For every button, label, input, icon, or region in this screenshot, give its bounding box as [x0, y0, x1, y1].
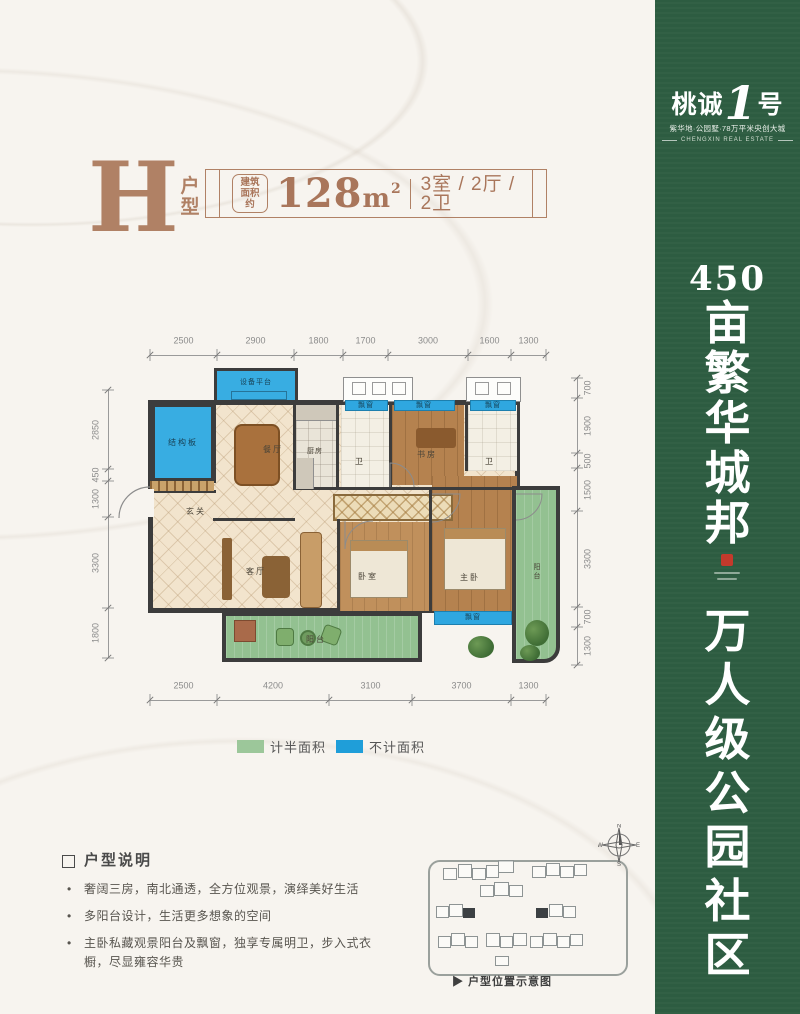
balcony-chair: [276, 628, 294, 646]
dimension: 700: [584, 609, 593, 624]
entry-opening: [145, 489, 154, 517]
wall: [337, 519, 340, 613]
siteplan-building: [472, 868, 486, 880]
siteplan-building: [438, 936, 451, 948]
siteplan-building: [513, 933, 527, 946]
headline-char: 城: [655, 448, 800, 498]
logo-text-right: 号: [758, 90, 784, 119]
entry-label: 玄关: [186, 507, 206, 517]
caption-text: 户型位置示意图: [468, 976, 552, 988]
logo-number: 1: [724, 76, 756, 130]
shoe-cabinet: [150, 481, 214, 491]
siteplan-building: [560, 866, 574, 878]
brand-tagline: 紫华地·公园墅·78万平米央创大城: [657, 124, 798, 133]
note-item: 多阳台设计，生活更多想象的空间: [62, 907, 392, 926]
dimension: [577, 378, 578, 665]
note-item: 主卧私藏观景阳台及飘窗，独享专属明卫，步入式衣橱，尽显雍容华贵: [62, 934, 392, 972]
right-balcony-label: 阳台: [531, 563, 541, 581]
bedroom-label: 卧室: [358, 572, 378, 582]
area-unit: m: [363, 184, 392, 214]
wall: [213, 518, 295, 521]
dimension: 1800: [308, 337, 328, 346]
dimension: 2500: [173, 337, 193, 346]
deco-line: [778, 140, 793, 141]
dimension: 1700: [355, 337, 375, 346]
study-label: 书房: [417, 450, 437, 460]
seal-caption-line: [714, 572, 740, 574]
bay-window-strip: 飘窗: [434, 611, 512, 625]
siteplan-building: [549, 904, 563, 917]
compass-n: N: [617, 824, 621, 830]
wall: [429, 489, 432, 613]
siteplan-building: [500, 936, 513, 948]
bay-window-label: 飘窗: [465, 613, 481, 623]
siteplan-building: [563, 906, 576, 918]
area-label-badge: 建筑 面积约: [232, 174, 268, 213]
washing-area: [234, 620, 256, 642]
ac-platform-1: [343, 377, 413, 402]
dimension: [150, 700, 546, 701]
bed: [350, 540, 408, 598]
spec-divider: [410, 179, 411, 209]
dimension: 2900: [245, 337, 265, 346]
headline-line1: 亩繁华城邦: [655, 298, 800, 548]
rooms-spec: 3室 / 2厅 / 2卫: [421, 175, 532, 213]
seal-caption-line: [717, 578, 737, 580]
dimension: 1300: [92, 489, 101, 509]
dimension: 3700: [451, 682, 471, 691]
sofa: [300, 532, 322, 608]
compass-e: E: [636, 843, 640, 849]
legend-half-area-swatch: [237, 740, 264, 753]
dimension: 1300: [518, 682, 538, 691]
bath1-label: 卫: [355, 457, 365, 467]
legend-excluded-area-swatch: [336, 740, 363, 753]
siteplan-highlighted-unit: [536, 908, 548, 918]
dimension: 1500: [584, 479, 593, 499]
caption-arrow-icon: ▶: [452, 976, 464, 988]
square-bullet-icon: [62, 855, 75, 868]
desk: [416, 428, 456, 448]
dimension: 500: [584, 453, 593, 468]
bay-window-label: 飘窗: [416, 401, 432, 411]
shrub: [520, 645, 540, 661]
compass-w: W: [598, 843, 603, 849]
dimension: 3000: [418, 337, 438, 346]
siteplan-building: [532, 866, 546, 878]
headline-char: 人: [655, 658, 800, 712]
legend-excluded-area-label: 不计面积: [369, 741, 425, 754]
dimension: 3300: [92, 552, 101, 572]
bay-window-label: 飘窗: [358, 401, 374, 411]
dimension: [108, 390, 109, 658]
siteplan-building: [498, 860, 514, 873]
wall: [336, 405, 339, 489]
notes-title: 户型说明: [62, 853, 152, 869]
equipment-hatch: [231, 391, 287, 400]
wall: [389, 405, 392, 487]
seal-icon: [721, 554, 733, 566]
unit-type-suffix: 户型: [180, 176, 200, 218]
dimension: 1900: [584, 415, 593, 435]
siteplan-highlighted-unit: [463, 908, 475, 918]
shrub: [525, 620, 549, 646]
dining-label: 餐厅: [263, 445, 283, 455]
brand-subtagline-text: CHENGXIN REAL ESTATE: [681, 136, 774, 144]
bathroom-1: [341, 405, 389, 489]
siteplan-caption: ▶ 户型位置示意图: [452, 976, 552, 988]
kitchen-label: 厨房: [307, 447, 323, 457]
siteplan-building: [509, 885, 523, 897]
siteplan-building: [543, 933, 557, 946]
unit-type-letter: H: [88, 150, 179, 246]
headline-char: 华: [655, 398, 800, 448]
siteplan-building: [557, 936, 570, 948]
area-number: 128m2: [276, 174, 402, 214]
headline-char: 亩: [655, 298, 800, 348]
master-label: 主卧: [460, 573, 480, 583]
dimension: 4200: [263, 682, 283, 691]
spec-box-left-cell: [206, 170, 220, 217]
brand-subtagline: CHENGXIN REAL ESTATE: [655, 136, 800, 144]
area-label-line2: 面积约: [238, 188, 262, 210]
notes-list: 奢阔三房，南北通透，全方位观景，演绎美好生活 多阳台设计，生活更多想象的空间 主…: [62, 880, 392, 980]
wall: [213, 403, 216, 483]
siteplan-building: [494, 882, 509, 896]
headline-char: 万: [655, 604, 800, 658]
unit-spec-box: 建筑 面积约 128m2 3室 / 2厅 / 2卫: [205, 169, 547, 218]
equipment-platform-label: 设备平台: [240, 378, 272, 388]
logo-text-left: 桃诚: [671, 90, 723, 119]
siteplan-building: [449, 904, 463, 917]
compass-s: S: [617, 862, 621, 866]
headline-char: 级: [655, 712, 800, 766]
siteplan-building: [530, 936, 543, 948]
headline-char: 园: [655, 820, 800, 874]
notes-title-text: 户型说明: [84, 853, 152, 869]
dimension: 3100: [360, 682, 380, 691]
compass-icon: N E S W: [598, 824, 640, 866]
siteplan-building: [570, 934, 583, 946]
structural-board-label: 结构板: [168, 438, 198, 448]
siteplan-building: [458, 864, 472, 878]
siteplan-building: [574, 864, 587, 876]
bay-window-label: 飘窗: [485, 401, 501, 411]
headline-line2: 万人级公园社区: [655, 604, 800, 982]
area-label-line1: 建筑: [238, 177, 262, 188]
dimension: 2850: [92, 419, 101, 439]
kitchen-counter: [296, 458, 314, 489]
dimension: 450: [92, 467, 101, 482]
brand-logo: 桃诚1号: [655, 88, 800, 120]
tv-cabinet: [222, 538, 232, 600]
note-item: 奢阔三房，南北通透，全方位观景，演绎美好生活: [62, 880, 392, 899]
area-exponent: 2: [391, 181, 402, 197]
deco-line: [662, 140, 677, 141]
legend-half-area-label: 计半面积: [270, 741, 326, 754]
bath2-label: 卫: [485, 457, 495, 467]
siteplan-building: [443, 868, 457, 880]
wall: [293, 487, 521, 490]
balcony-label: 阳台: [306, 635, 326, 645]
kitchen-counter: [296, 405, 336, 421]
equipment-platform: 设备平台: [214, 368, 298, 403]
ac-platform-2: [466, 377, 521, 402]
living-label: 客厅: [246, 567, 266, 577]
dining-table: [234, 424, 280, 486]
headline-number: 450: [655, 260, 800, 298]
dimension: 1600: [479, 337, 499, 346]
dimension: 2500: [173, 682, 193, 691]
dimension: 1300: [518, 337, 538, 346]
siteplan-building: [465, 936, 478, 948]
headline-char: 繁: [655, 348, 800, 398]
siteplan-building: [451, 933, 465, 946]
siteplan-building: [486, 933, 500, 947]
siteplan-building: [546, 863, 560, 876]
wall: [465, 405, 468, 471]
dimension: 700: [584, 380, 593, 395]
siteplan-building: [436, 906, 449, 918]
shrub: [468, 636, 494, 658]
corridor: [333, 494, 453, 521]
headline-char: 公: [655, 766, 800, 820]
dimension: 1300: [584, 636, 593, 656]
siteplan-building: [480, 885, 494, 897]
headline-char: 邦: [655, 498, 800, 548]
dimension: [150, 355, 546, 356]
spec-box-right-cell: [532, 170, 546, 217]
headline-char: 区: [655, 928, 800, 982]
siteplan-building: [495, 956, 509, 966]
headline-char: 社: [655, 874, 800, 928]
structural-board-room: 结构板: [152, 404, 214, 481]
dimension: 1800: [92, 623, 101, 643]
coffee-table: [262, 556, 290, 598]
dimension: 3300: [584, 549, 593, 569]
